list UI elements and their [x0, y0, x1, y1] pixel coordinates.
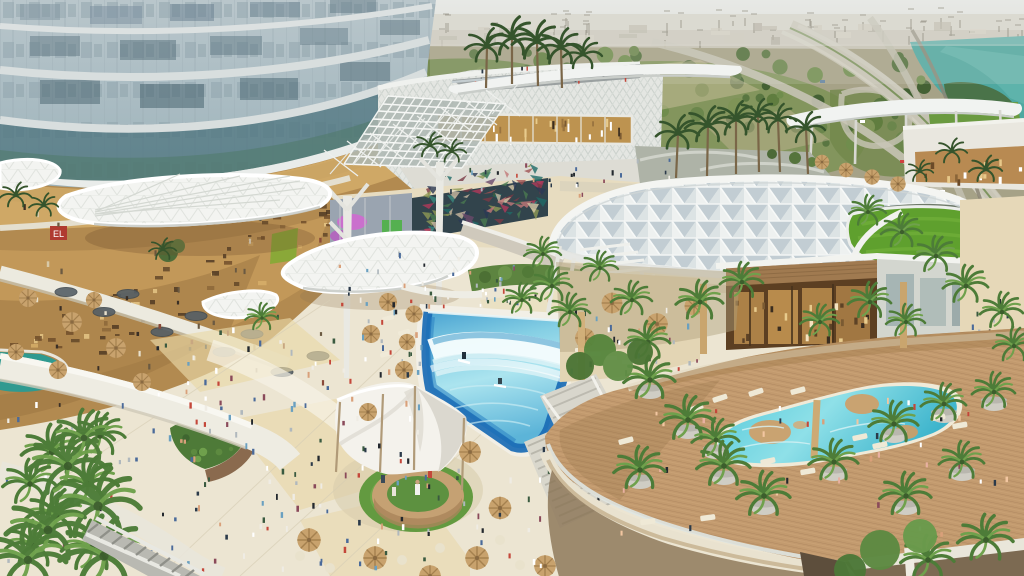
svg-text:EL: EL — [53, 229, 64, 239]
